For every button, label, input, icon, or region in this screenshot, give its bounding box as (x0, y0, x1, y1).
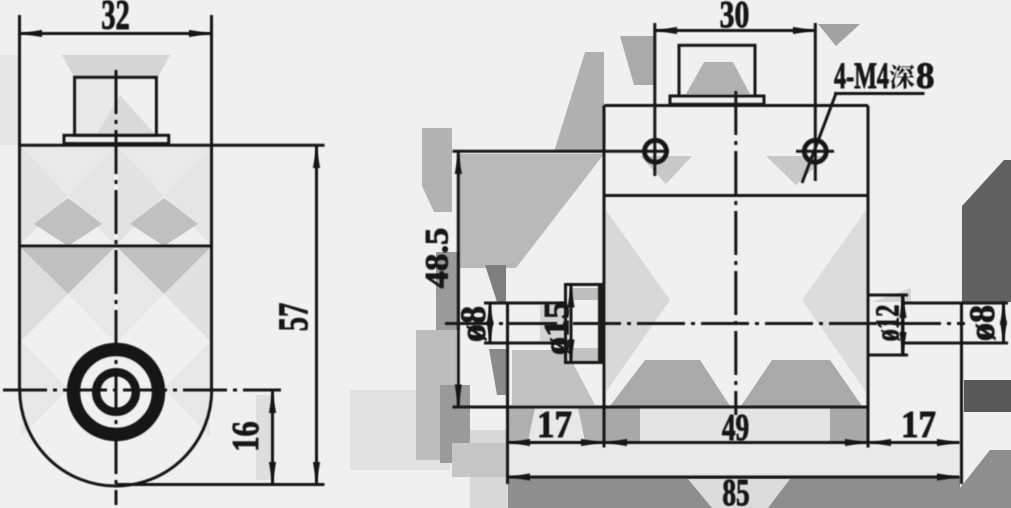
svg-text:16: 16 (225, 421, 267, 451)
svg-text:30: 30 (720, 0, 750, 36)
svg-text:ø12: ø12 (870, 305, 907, 342)
svg-text:8: 8 (916, 56, 935, 97)
svg-text:48.5: 48.5 (419, 228, 455, 289)
svg-text:49: 49 (722, 407, 749, 449)
svg-text:17: 17 (537, 403, 572, 446)
svg-text:ø8: ø8 (962, 305, 1002, 341)
svg-text:32: 32 (101, 0, 130, 38)
svg-text:4-M4: 4-M4 (834, 56, 889, 97)
svg-text:57: 57 (270, 303, 317, 332)
svg-text:17: 17 (901, 403, 936, 446)
svg-text:ø15: ø15 (537, 301, 577, 355)
svg-text:85: 85 (722, 472, 749, 508)
svg-text:ø8: ø8 (453, 306, 493, 342)
